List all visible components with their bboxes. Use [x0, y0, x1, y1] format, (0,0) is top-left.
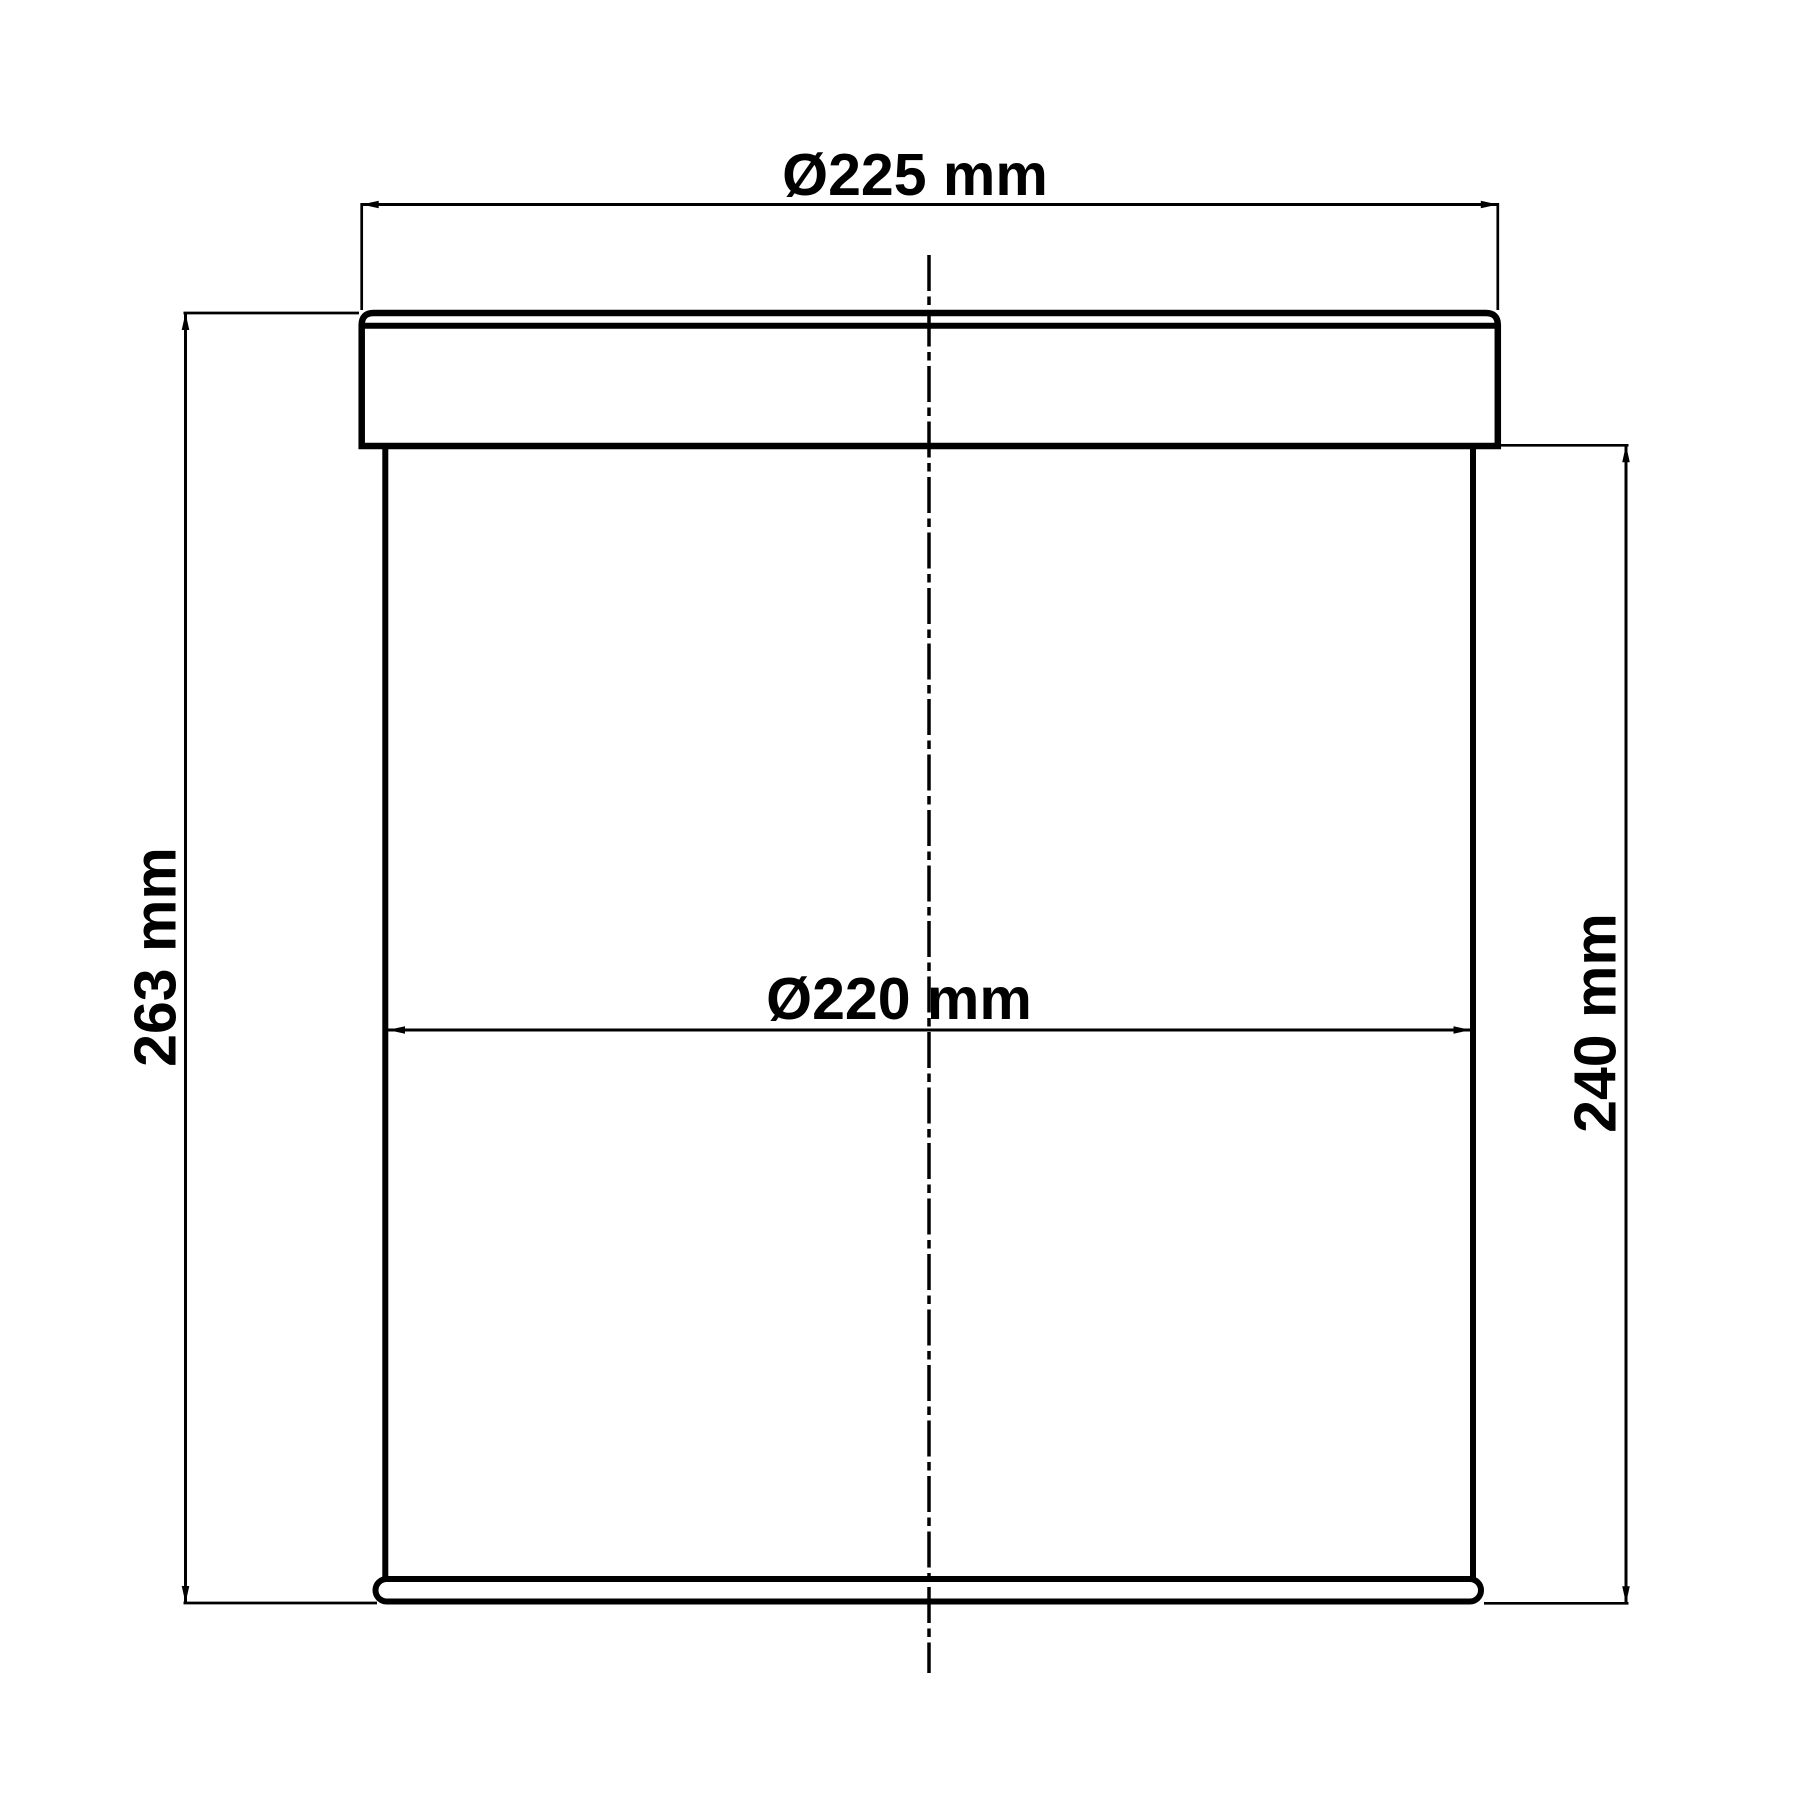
svg-text:263 mm: 263 mm	[123, 847, 189, 1067]
svg-text:Ø220 mm: Ø220 mm	[766, 966, 1032, 1032]
svg-text:240 mm: 240 mm	[1563, 913, 1629, 1133]
svg-text:Ø225 mm: Ø225 mm	[782, 142, 1048, 208]
